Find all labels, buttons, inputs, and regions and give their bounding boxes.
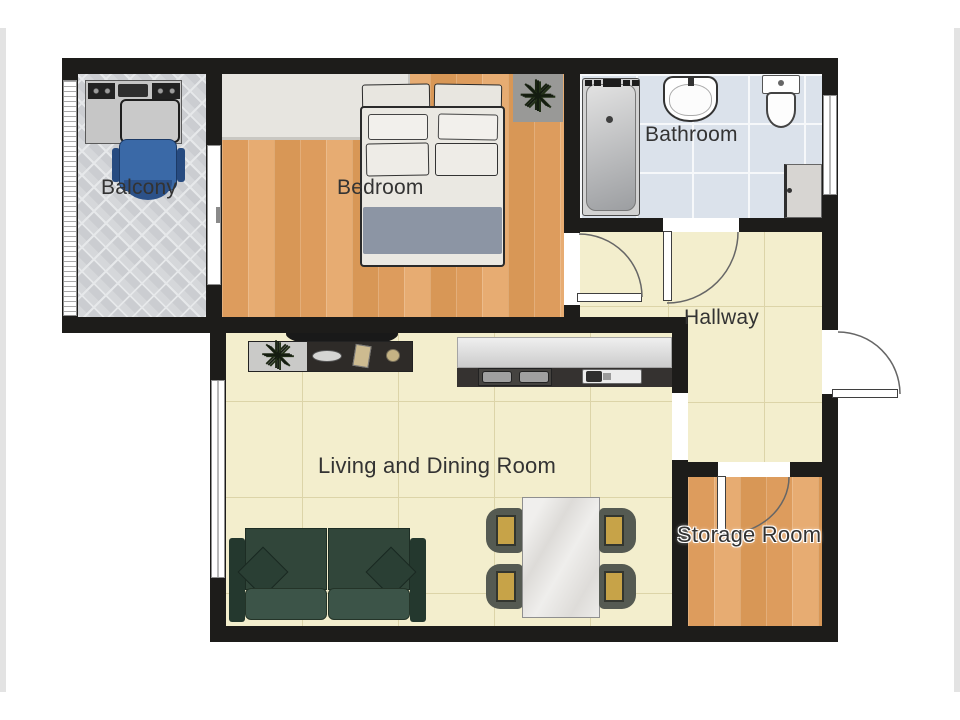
bathtub-basin xyxy=(586,84,636,211)
desk-speaker-right xyxy=(152,83,180,99)
bathtub-fixture-bar xyxy=(603,79,621,87)
sideboard-plant: ✳ xyxy=(252,338,304,376)
washing-machine-knob xyxy=(787,188,792,193)
toilet-flush-button xyxy=(778,80,784,86)
storage-door-opening xyxy=(718,462,790,477)
stove xyxy=(478,368,552,386)
toilet-bowl xyxy=(766,92,796,128)
image-edge-left xyxy=(0,28,6,692)
bed-pillow-1 xyxy=(368,114,428,140)
entrance-opening xyxy=(822,330,838,394)
bathtub-fixture-4 xyxy=(632,80,639,86)
sofa-armrest-left xyxy=(229,538,245,622)
sideboard-bowl xyxy=(312,350,342,362)
bed-pillow-4 xyxy=(435,143,498,176)
sofa-seat-cushion-right xyxy=(328,588,410,620)
dining-chair-seat xyxy=(496,515,516,546)
sofa xyxy=(229,528,426,622)
dining-chair-seat xyxy=(604,571,624,602)
bathtub-fixture-2 xyxy=(594,80,601,86)
bathroom-window xyxy=(823,95,837,195)
floor-plan: ✳ ✳ xyxy=(0,0,960,720)
dining-chair-seat xyxy=(604,515,624,546)
bed-pillow-3 xyxy=(366,142,430,176)
image-edge-right xyxy=(954,28,960,692)
hallway-label: Hallway xyxy=(684,306,759,330)
sofa-seat-cushion-left xyxy=(245,588,327,620)
bed-pillow-2 xyxy=(438,113,498,140)
stove-grate-right xyxy=(519,371,549,383)
dining-chair xyxy=(599,508,636,553)
sliding-door-handle xyxy=(216,207,220,223)
washbasin-faucet xyxy=(688,77,694,86)
wall-right-lower xyxy=(822,394,838,642)
washbasin-bowl xyxy=(669,84,712,116)
wall-living-hallway xyxy=(672,333,688,393)
living-room-window xyxy=(211,380,225,578)
entrance-door-leaf xyxy=(832,389,898,398)
bathtub-drain xyxy=(606,116,613,123)
kitchen-countertop xyxy=(457,337,672,368)
living-dining-label: Living and Dining Room xyxy=(318,453,556,479)
living-hallway-passage xyxy=(672,393,688,460)
dining-chair xyxy=(599,564,636,609)
bathtub-fixture-1 xyxy=(585,80,592,86)
bathroom-label: Bathroom xyxy=(645,123,738,147)
desk-keyboard xyxy=(118,84,148,97)
bathroom-door-opening xyxy=(663,218,739,232)
dining-chair-seat xyxy=(496,571,516,602)
wall-top xyxy=(62,58,838,74)
balcony-label: Balcony xyxy=(101,176,177,200)
wall-bedroom-south xyxy=(206,317,688,333)
bathroom-door-leaf xyxy=(663,231,672,301)
sofa-armrest-right xyxy=(410,538,426,622)
bedroom-label: Bedroom xyxy=(337,176,424,200)
desk-speaker-left xyxy=(88,83,115,99)
kitchen-faucet-handle xyxy=(603,373,611,380)
bathtub-fixture-3 xyxy=(623,80,630,86)
entrance-door-arc xyxy=(838,332,900,394)
dining-chair xyxy=(486,564,523,609)
dining-chair xyxy=(486,508,523,553)
storage-floor xyxy=(688,477,822,626)
desk-panel xyxy=(120,99,180,143)
bedroom-plant: ✳ xyxy=(514,76,562,118)
kitchen-faucet xyxy=(586,371,602,382)
wall-storage-west xyxy=(672,460,688,642)
dining-table xyxy=(522,497,600,618)
sideboard-box xyxy=(352,344,371,368)
hallway-floor-lower xyxy=(688,317,822,462)
stove-grate-left xyxy=(482,371,512,383)
office-chair-armrest-right xyxy=(177,148,185,182)
hallway-floor-upper xyxy=(580,232,822,317)
storage-label: Storage Room xyxy=(677,522,821,548)
bedroom-door-leaf xyxy=(577,293,642,302)
wall-bottom xyxy=(210,626,838,642)
kitchen-counter xyxy=(457,337,672,387)
sideboard-round-item xyxy=(386,349,400,362)
balcony-window xyxy=(63,80,77,316)
wall-balcony-south xyxy=(62,317,222,333)
bed-blanket xyxy=(363,207,502,254)
